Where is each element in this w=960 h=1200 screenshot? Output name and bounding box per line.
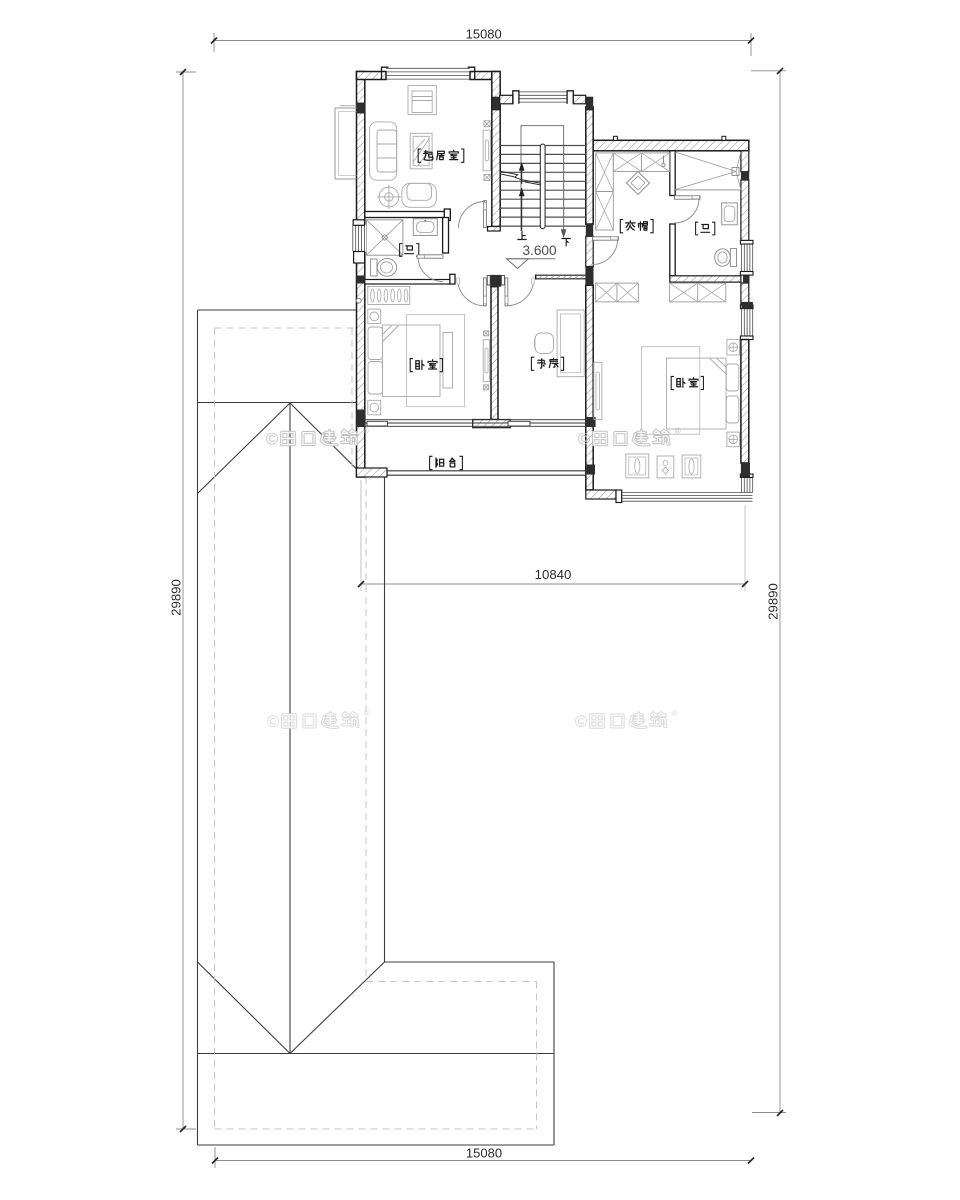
svg-text:®: ® [672, 709, 678, 718]
svg-text:10840: 10840 [535, 567, 572, 582]
svg-text:29890: 29890 [766, 583, 781, 620]
svg-text:15080: 15080 [466, 1146, 502, 1161]
svg-text:®: ® [364, 709, 370, 718]
svg-text:29890: 29890 [169, 579, 184, 616]
svg-text:®: ® [675, 427, 681, 436]
svg-text:®: ® [363, 427, 369, 436]
svg-text:©: © [267, 712, 280, 731]
svg-text:©: © [578, 430, 591, 449]
svg-text:©: © [575, 712, 588, 731]
svg-text:15080: 15080 [466, 26, 502, 41]
svg-text:3.600: 3.600 [522, 243, 556, 258]
svg-text:©: © [266, 430, 279, 449]
